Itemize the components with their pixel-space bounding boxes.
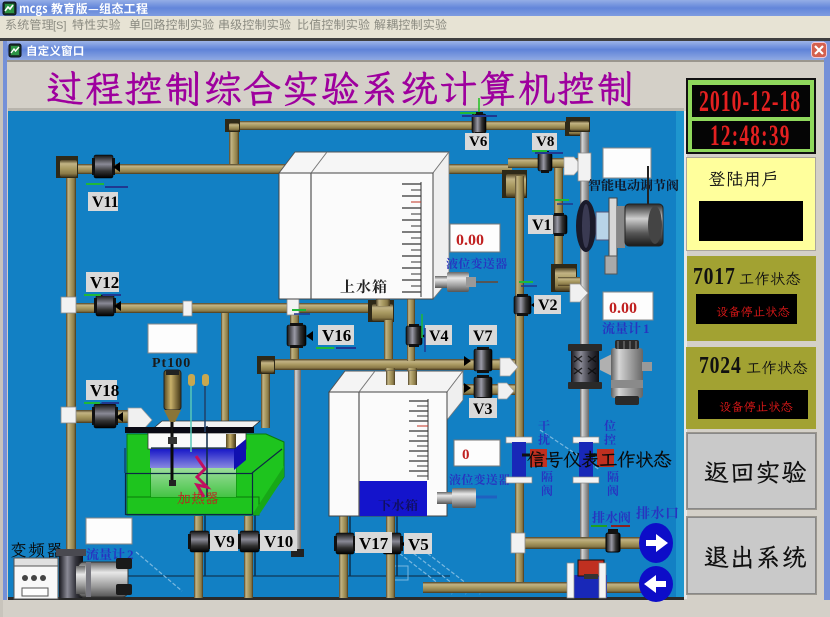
svg-text:V16: V16 (322, 326, 351, 345)
svg-text:V7: V7 (473, 328, 493, 345)
svg-text:0.00: 0.00 (456, 232, 484, 249)
svg-text:V6: V6 (469, 134, 488, 150)
svg-text:0.00: 0.00 (609, 300, 637, 317)
svg-text:V10: V10 (264, 532, 293, 551)
svg-text:Pt100: Pt100 (152, 356, 191, 371)
svg-text:12:48:39: 12:48:39 (710, 120, 791, 152)
svg-text:V18: V18 (90, 381, 119, 400)
svg-text:V8: V8 (536, 134, 554, 150)
svg-text:7017: 7017 (693, 262, 736, 289)
svg-text:V1: V1 (532, 217, 552, 234)
svg-text:V3: V3 (473, 401, 493, 418)
svg-text:0: 0 (462, 447, 470, 463)
svg-text:[S]: [S] (53, 20, 66, 32)
svg-text:V17: V17 (359, 534, 389, 553)
svg-text:V2: V2 (538, 297, 558, 314)
svg-text:V4: V4 (429, 328, 449, 345)
svg-text:2010-12-18: 2010-12-18 (699, 84, 801, 119)
svg-text:V12: V12 (90, 273, 119, 292)
svg-text:V5: V5 (408, 535, 429, 554)
svg-text:7024: 7024 (699, 351, 742, 378)
svg-text:V11: V11 (92, 194, 119, 211)
svg-text:1: 1 (643, 321, 650, 336)
svg-text:V9: V9 (214, 532, 235, 551)
